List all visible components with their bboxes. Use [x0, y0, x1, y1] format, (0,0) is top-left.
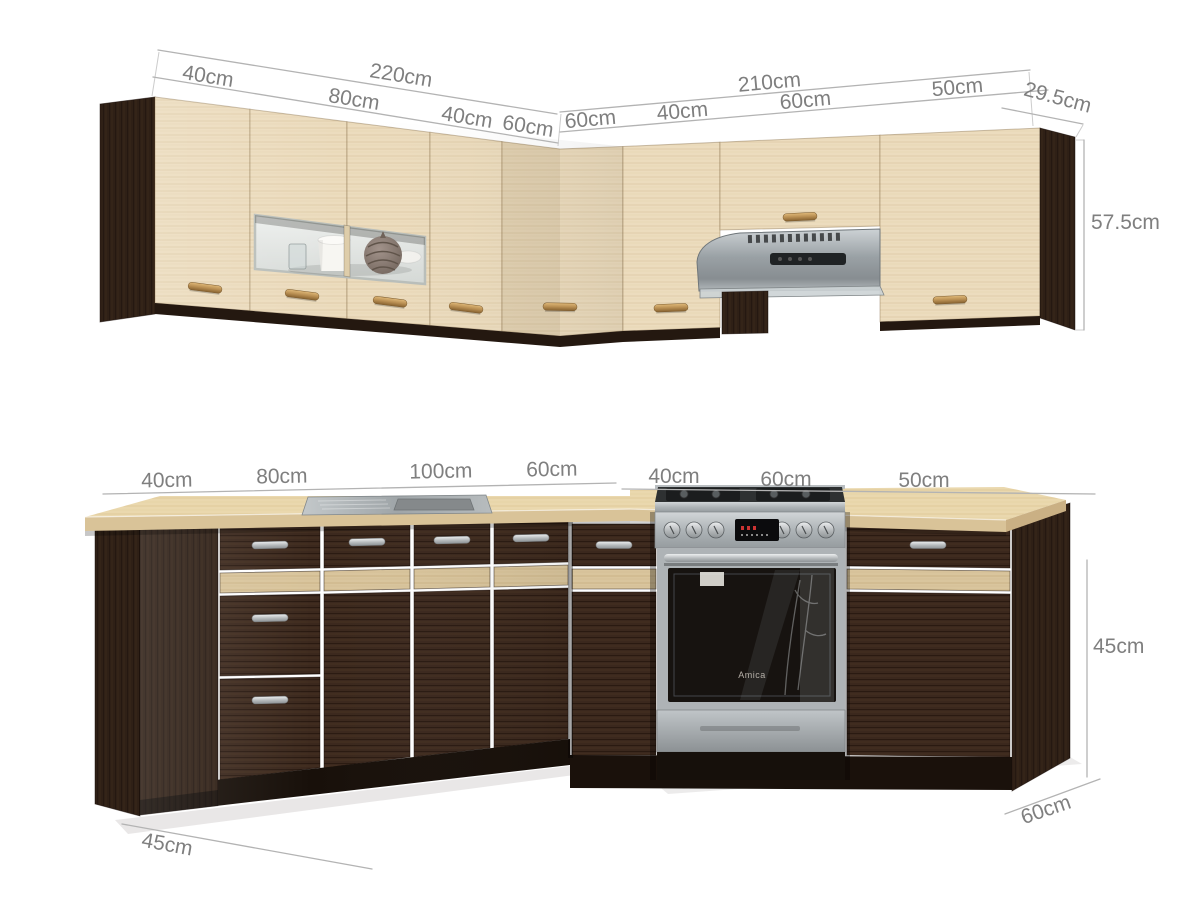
- drawer-handle: [434, 536, 470, 544]
- dim-lower-height: 45cm: [1093, 635, 1144, 658]
- stove-base: [657, 752, 845, 780]
- sink-bowl: [394, 499, 474, 510]
- dim-lower-right-segment-0: 40cm: [648, 465, 699, 488]
- range-hood: [697, 229, 884, 298]
- dim-lower-left-segment-1: 80cm: [256, 464, 308, 488]
- cabinet-door: [847, 592, 1010, 757]
- dim-lower-left-segment-0: 40cm: [141, 468, 193, 492]
- door-handle: [543, 303, 577, 311]
- stove-display: [735, 519, 779, 541]
- oven-brand-label: Amica: [738, 670, 766, 680]
- light-overlay: [140, 512, 570, 816]
- oven-door: Amica: [657, 548, 845, 710]
- kitchen-scene: Amica 220cm 40cm 80cm 40cm 60cm 210cm 60…: [0, 0, 1204, 903]
- dim-lower-right-segment-2: 50cm: [898, 469, 949, 492]
- oven-handle: [664, 554, 838, 562]
- door-handle: [933, 295, 967, 304]
- cabinet-door: [572, 592, 656, 755]
- upper-door: [880, 128, 1040, 322]
- drawer-handle: [252, 614, 288, 622]
- door-handle: [654, 303, 688, 312]
- base-cabinet-40: [572, 524, 656, 755]
- inner-corner-shadow: [568, 512, 573, 758]
- base-cabinet-50: [847, 524, 1010, 757]
- door-handle: [783, 212, 817, 221]
- dim-lower-left-segment-2: 100cm: [409, 459, 472, 483]
- accent-strip: [572, 569, 656, 589]
- dim-upper-height: 57.5cm: [1091, 211, 1160, 234]
- drawer-handle: [252, 696, 288, 704]
- dim-upper-right-segment-3: 50cm: [931, 74, 984, 101]
- kitchen-sink: [302, 495, 492, 515]
- dim-lower-left-segment-3: 60cm: [526, 457, 578, 481]
- dim-upper-right-segment-0: 60cm: [564, 106, 617, 133]
- upper-door: [623, 142, 720, 331]
- accent-strip: [847, 569, 1010, 591]
- energy-label: [700, 572, 724, 586]
- dim-upper-right-segment-2: 60cm: [779, 87, 832, 114]
- drawer-handle: [252, 541, 288, 549]
- drawer-handle: [596, 542, 632, 549]
- freestanding-stove: Amica: [650, 485, 850, 780]
- base-left-side-panel: [95, 522, 140, 816]
- dim-upper-right-segment-1: 40cm: [656, 98, 709, 125]
- hood-chimney-panel: [722, 291, 768, 334]
- base-right-side-panel: [1012, 503, 1070, 791]
- base-cabinets: Amica: [85, 485, 1082, 834]
- drawer-handle: [910, 542, 946, 549]
- dim-lower-right-segment-1: 60cm: [760, 468, 811, 491]
- drawer-handle: [349, 538, 385, 546]
- kitchen-product-image: Amica 220cm 40cm 80cm 40cm 60cm 210cm 60…: [0, 0, 1204, 903]
- upper-left-end-panel: [100, 97, 155, 322]
- drawer-handle: [513, 534, 549, 542]
- upper-right-end-panel: [1040, 128, 1075, 330]
